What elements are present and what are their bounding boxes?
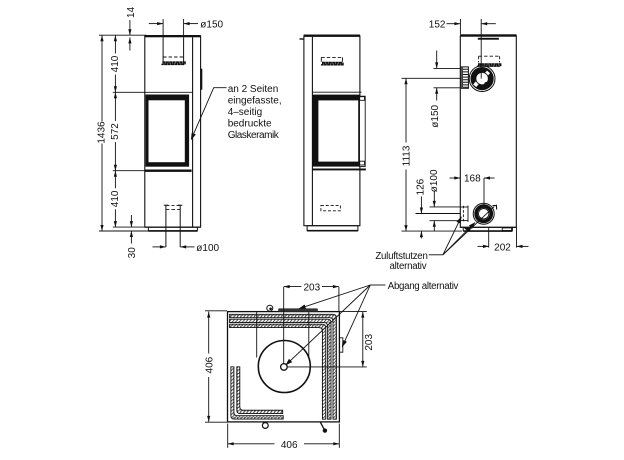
svg-text:14: 14: [126, 6, 137, 18]
svg-text:572: 572: [110, 123, 121, 140]
svg-text:410: 410: [110, 55, 121, 72]
svg-text:ø150: ø150: [200, 19, 223, 30]
svg-text:406: 406: [205, 356, 216, 373]
svg-text:ø100: ø100: [196, 243, 219, 254]
svg-text:202: 202: [494, 243, 511, 254]
svg-text:alternativ: alternativ: [389, 261, 426, 272]
svg-text:1436: 1436: [97, 121, 108, 144]
svg-text:an 2 Seiten: an 2 Seiten: [228, 84, 279, 95]
svg-text:Abgang alternativ: Abgang alternativ: [388, 281, 459, 292]
svg-text:203: 203: [303, 283, 320, 294]
svg-text:30: 30: [127, 247, 138, 259]
svg-text:203: 203: [364, 334, 375, 351]
svg-text:4–seitig: 4–seitig: [228, 107, 262, 118]
svg-text:ø150: ø150: [430, 104, 441, 127]
svg-text:410: 410: [110, 190, 121, 207]
svg-text:406: 406: [281, 440, 298, 451]
svg-text:168: 168: [464, 173, 481, 184]
svg-text:152: 152: [429, 19, 446, 30]
svg-text:1113: 1113: [401, 145, 412, 166]
svg-text:bedruckte: bedruckte: [228, 119, 272, 130]
svg-text:ø100: ø100: [429, 169, 440, 192]
svg-text:Glaskeramik: Glaskeramik: [228, 130, 280, 141]
svg-text:126: 126: [415, 178, 426, 195]
svg-text:eingefasste,: eingefasste,: [228, 96, 282, 107]
